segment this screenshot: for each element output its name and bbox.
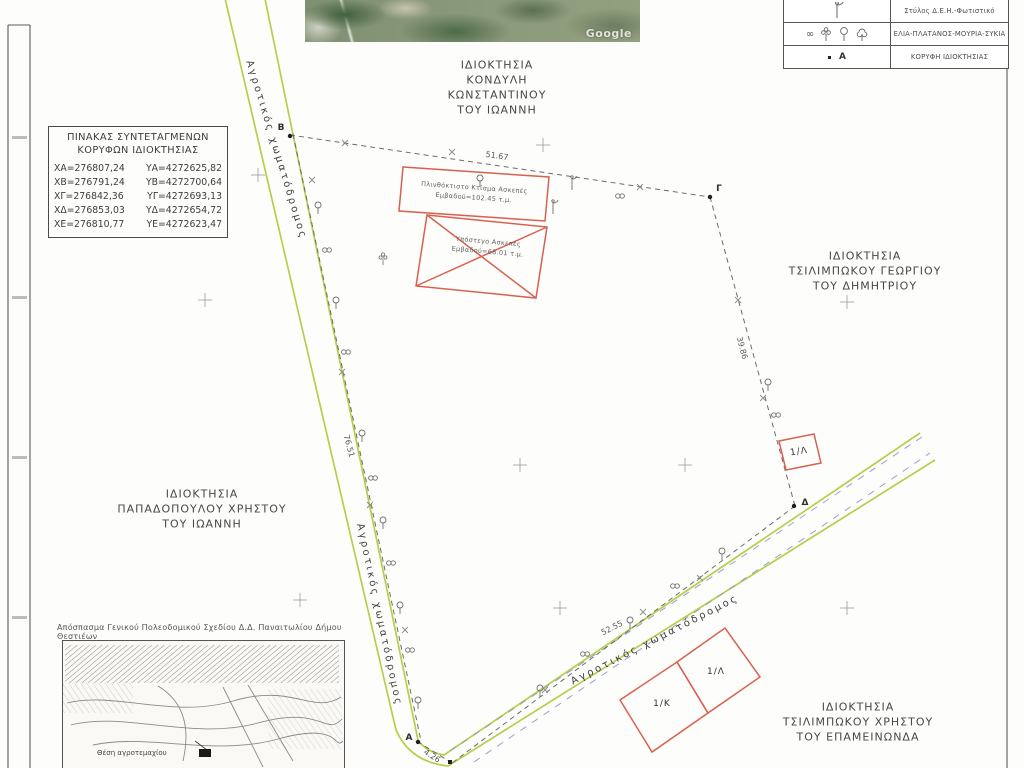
table-row: ΧΔ=276853,03ΥΔ=4272654,72: [54, 204, 222, 218]
vertex-marker-icon: Α: [784, 46, 891, 68]
grid-cross: [840, 295, 854, 309]
olive-icon: [671, 584, 680, 588]
vertex-label-a: Α: [406, 733, 413, 743]
olive-icon: [323, 248, 332, 252]
coordinates-table: ΠΙΝΑΚΑΣ ΣΥΝΤΕΤΑΓΜΕΝΩΝ ΚΟΡΥΦΩΝ ΙΔΙΟΚΤΗΣΙΑ…: [48, 126, 228, 238]
satellite-inset-image: Google: [305, 0, 640, 42]
tree-icon: [380, 517, 386, 529]
utility-pole-icon: [784, 0, 891, 22]
parcel-label-1k: 1/Κ: [653, 699, 671, 709]
survey-x-mark: [697, 575, 703, 581]
inset-caption: Απόσπασμα Γενικού Πολεοδομικού Σχεδίου Δ…: [57, 623, 357, 641]
legend-row-pole: Στύλος Δ.Ε.Η.-Φωτιστικό: [784, 0, 1008, 22]
utility-pole-icon: [552, 200, 558, 214]
inset-location-marker: [199, 749, 211, 757]
survey-x-mark: [402, 627, 408, 633]
legend-label: Στύλος Δ.Ε.Η.-Φωτιστικό: [891, 0, 1008, 22]
grid-cross: [678, 458, 692, 472]
olive-icon: [616, 194, 625, 198]
grid-cross: [251, 168, 265, 182]
mulberry-tree-icon: [838, 26, 850, 42]
inset-plan-map: Θέση αγροτεμαχίου: [62, 640, 345, 768]
grid-coordinate-smudges: [12, 136, 27, 619]
grid-cross: [553, 601, 567, 615]
utility-pole-icon: [571, 176, 577, 190]
plane-tree-icon: [379, 253, 387, 265]
tree-icon: [359, 430, 365, 442]
olive-icon: [406, 648, 415, 652]
tree-icon: [315, 202, 321, 214]
grid-cross: [198, 293, 212, 307]
tree-icon: [397, 602, 403, 614]
grid-cross: [536, 138, 550, 152]
grid-cross: [840, 601, 854, 615]
property-label-east: ΙΔΙΟΚΤΗΣΙΑ ΤΣΙΛΙΜΠΩΚΟΥ ΓΕΩΡΓΙΟΥ ΤΟΥ ΔΗΜΗ…: [789, 250, 942, 295]
table-row: ΧΓ=276842,36ΥΓ=4272693,13: [54, 190, 222, 204]
tree-icon: [333, 297, 339, 309]
survey-x-mark: [735, 297, 741, 303]
legend-label: ΚΟΡΥΦΗ ΙΔΙΟΚΤΗΣΙΑΣ: [891, 46, 1008, 68]
olive-icon: [772, 413, 781, 417]
tree-icon: [719, 548, 725, 560]
survey-x-mark: [309, 177, 315, 183]
google-watermark: Google: [586, 27, 632, 40]
property-label-west: ΙΔΙΟΚΤΗΣΙΑ ΠΑΠΑΔΟΠΟΥΛΟΥ ΧΡΗΣΤΟΥ ΤΟΥ ΙΩΑΝ…: [117, 488, 286, 533]
table-row: ΧΒ=276791,24ΥΒ=4272700,64: [54, 176, 222, 190]
survey-x-mark: [449, 149, 455, 155]
vertex-label-b: Β: [278, 123, 285, 133]
legend-row-trees: ∞ ΕΛΙΑ-ΠΛΑΤΑΝΟΣ-ΜΟΥΡΙΑ-ΣΥΚΙΑ: [784, 22, 1008, 45]
olive-icon: [369, 476, 378, 480]
fig-tree-icon: [856, 26, 868, 42]
olive-icon: [387, 561, 396, 565]
coordinates-table-title: ΠΙΝΑΚΑΣ ΣΥΝΤΕΤΑΓΜΕΝΩΝ ΚΟΡΥΦΩΝ ΙΔΙΟΚΤΗΣΙΑ…: [54, 131, 222, 157]
olive-icon: [581, 652, 590, 656]
table-row: ΧΑ=276807,24ΥΑ=4272625,82: [54, 162, 222, 176]
olive-icon: ∞: [806, 29, 814, 40]
tree-icon: [765, 379, 771, 391]
legend-label: ΕΛΙΑ-ΠΛΑΤΑΝΟΣ-ΜΟΥΡΙΑ-ΣΥΚΙΑ: [891, 23, 1008, 45]
tree-species-icons: ∞: [784, 23, 891, 45]
olive-icon: [342, 350, 351, 354]
legend-row-vertex: Α ΚΟΡΥΦΗ ΙΔΙΟΚΤΗΣΙΑΣ: [784, 45, 1008, 68]
grid-cross: [513, 458, 527, 472]
tree-icon: [415, 697, 421, 709]
grid-cross: [293, 593, 307, 607]
vertex-label-g: Γ: [716, 184, 722, 194]
property-label-southeast: ΙΔΙΟΚΤΗΣΙΑ ΤΣΙΛΙΜΠΩΚΟΥ ΧΡΗΣΤΟΥ ΤΟΥ ΕΠΑΜΕ…: [783, 701, 933, 746]
vertex-label-d: Δ: [802, 498, 809, 508]
survey-x-mark: [640, 609, 646, 615]
survey-drawing: Google Στύλος Δ.Ε.Η.-Φωτιστικό ∞ ΕΛΙΑ-ΠΛ…: [0, 0, 1024, 768]
inset-location-label: Θέση αγροτεμαχίου: [97, 749, 167, 757]
table-row: ΧΕ=276810,77ΥΕ=4272623,47: [54, 218, 222, 232]
property-label-north: ΙΔΙΟΚΤΗΣΙΑ ΚΟΝΔΥΛΗ ΚΩΝΣΤΑΝΤΙΝΟΥ ΤΟΥ ΙΩΑΝ…: [448, 58, 547, 117]
plane-tree-icon: [820, 26, 832, 42]
parcel-label-1l: 1/Λ: [707, 667, 725, 677]
legend-table: Στύλος Δ.Ε.Η.-Φωτιστικό ∞ ΕΛΙΑ-ΠΛΑΤΑΝΟΣ-…: [783, 0, 1009, 69]
